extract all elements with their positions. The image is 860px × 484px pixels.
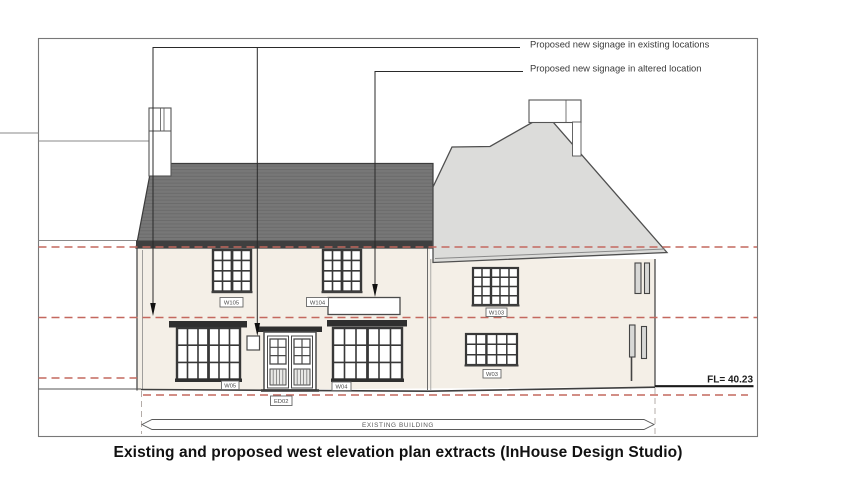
- window-w03: [465, 334, 519, 367]
- label-w03: W03: [483, 370, 501, 379]
- proposed-sign-altered: [328, 298, 400, 315]
- svg-text:W05: W05: [224, 384, 236, 390]
- elevation-drawing: FL= 40.23 Proposed new signage in existi…: [0, 0, 860, 484]
- fl-level-label: FL= 40.23: [707, 375, 753, 386]
- roof-light-hipped: [433, 122, 667, 263]
- svg-text:W104: W104: [310, 300, 326, 306]
- annotation-legend: Proposed new signage in existing locatio…: [530, 39, 710, 74]
- svg-text:W105: W105: [224, 301, 239, 307]
- label-w104: W104: [307, 298, 329, 307]
- door-ed02: [258, 327, 322, 391]
- label-ed02: ED02: [271, 396, 293, 406]
- window-w104: [322, 250, 363, 293]
- svg-text:W103: W103: [489, 311, 504, 317]
- fl-level: FL= 40.23: [655, 375, 754, 387]
- svg-text:W04: W04: [336, 385, 349, 391]
- svg-text:W03: W03: [486, 372, 498, 378]
- shopfront-w04: [327, 320, 407, 382]
- roof-dark: [136, 164, 433, 249]
- label-w105: W105: [220, 298, 243, 308]
- label-w04: W04: [332, 382, 351, 391]
- legend-altered-location: Proposed new signage in altered location: [530, 63, 701, 74]
- window-w105: [212, 250, 253, 293]
- shopfront-w05: [169, 321, 247, 382]
- figure-caption: Existing and proposed west elevation pla…: [0, 444, 796, 462]
- document-page: FL= 40.23 Proposed new signage in existi…: [0, 0, 860, 484]
- dimension-label: EXISTING BUILDING: [362, 422, 434, 429]
- svg-text:ED02: ED02: [274, 399, 289, 405]
- label-w103: W103: [486, 308, 507, 317]
- window-w103: [472, 268, 520, 307]
- label-w05: W05: [222, 381, 240, 390]
- legend-existing-locations: Proposed new signage in existing locatio…: [530, 39, 710, 50]
- neighbour-building-lines: [0, 133, 149, 241]
- chimney-left: [149, 108, 171, 176]
- proposed-sign-existing: [247, 336, 260, 350]
